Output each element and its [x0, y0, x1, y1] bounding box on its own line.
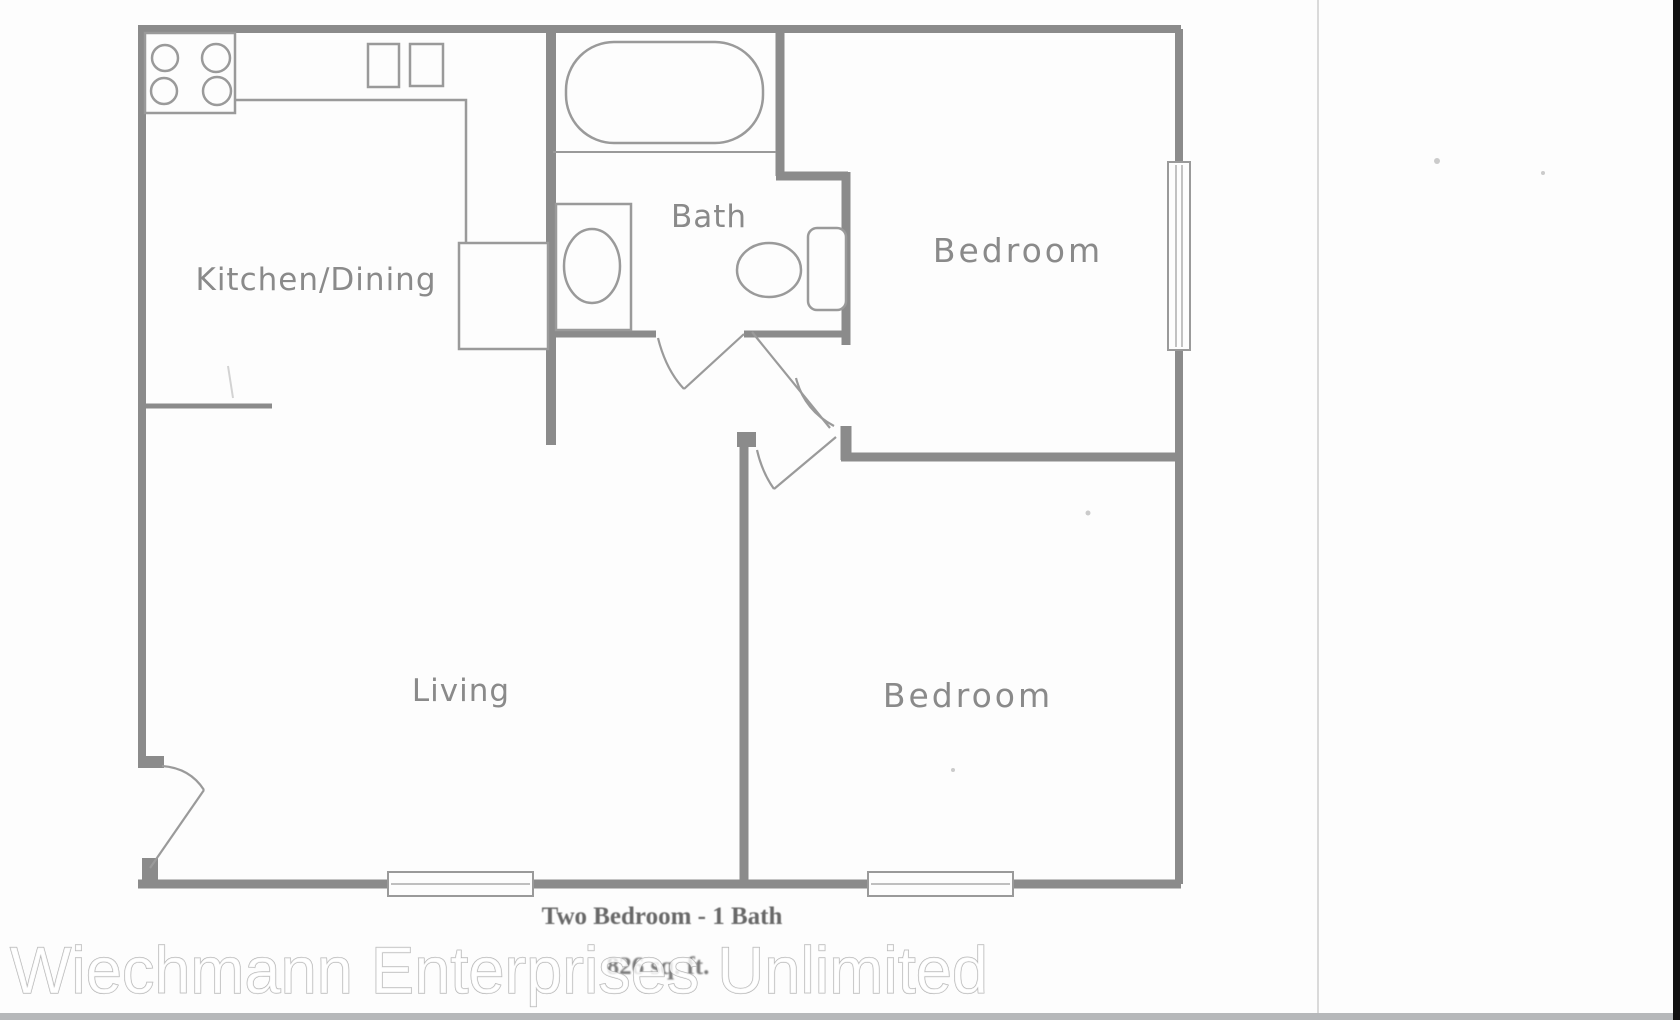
interior-walls: [138, 29, 1181, 884]
caption-title: Two Bedroom - 1 Bath: [542, 903, 783, 930]
door-swing-icon: [684, 334, 744, 389]
window-icon: [1168, 162, 1190, 350]
room-label-bath: Bath: [671, 199, 747, 235]
scan-speck: [228, 366, 233, 398]
wall-left-door-jamb: [138, 756, 164, 768]
room-label-living: Living: [412, 673, 510, 709]
photo-bottom-strip: [0, 1013, 1673, 1020]
toilet-icon: [737, 243, 801, 297]
doors: [150, 332, 836, 868]
double-sink-icon: [368, 44, 399, 87]
bath-fixtures: [553, 42, 846, 330]
photo-right-edge: [1673, 0, 1680, 1020]
door-arc: [162, 766, 204, 790]
floor-plan-canvas: Kitchen/Dining Bath Bedroom Living Bedro…: [0, 0, 1680, 1020]
scan-artifacts: [0, 0, 1680, 1020]
door-arc: [796, 378, 834, 426]
kitchen-fixtures: [145, 33, 548, 349]
watermark-text: Wiechmann Enterprises Unlimited: [10, 933, 988, 1007]
scan-speck: [951, 768, 955, 772]
scan-speck: [1434, 158, 1440, 164]
double-sink-icon: [410, 44, 443, 86]
scan-speck: [1086, 511, 1091, 516]
kitchen-counter: [235, 100, 466, 247]
door-arc: [757, 450, 774, 489]
bathtub-icon: [566, 42, 763, 143]
vanity-cabinet-icon: [808, 228, 846, 310]
door-swing-icon: [752, 332, 830, 428]
room-label-kitchen: Kitchen/Dining: [195, 262, 436, 298]
door-swing-icon: [774, 437, 836, 489]
door-arc: [658, 338, 684, 389]
room-label-bedroom-bottom: Bedroom: [883, 676, 1053, 715]
pantry-cabinet: [459, 243, 548, 349]
door-swing-icon: [150, 790, 204, 868]
floor-plan-scan: Kitchen/Dining Bath Bedroom Living Bedro…: [0, 0, 1680, 1020]
room-label-bedroom-top: Bedroom: [933, 231, 1103, 270]
scan-speck: [1541, 171, 1545, 175]
